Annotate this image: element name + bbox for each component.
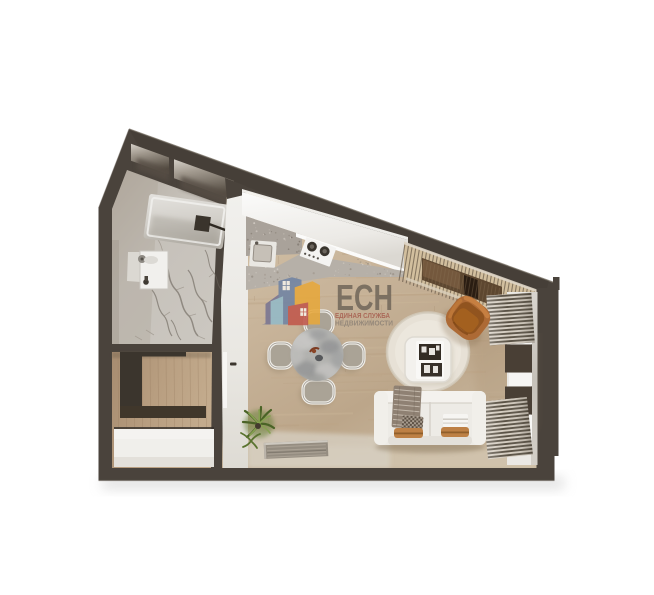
svg-text:НЕДВИЖИМОСТИ: НЕДВИЖИМОСТИ xyxy=(335,319,393,328)
svg-text:ЕСН: ЕСН xyxy=(336,277,393,318)
